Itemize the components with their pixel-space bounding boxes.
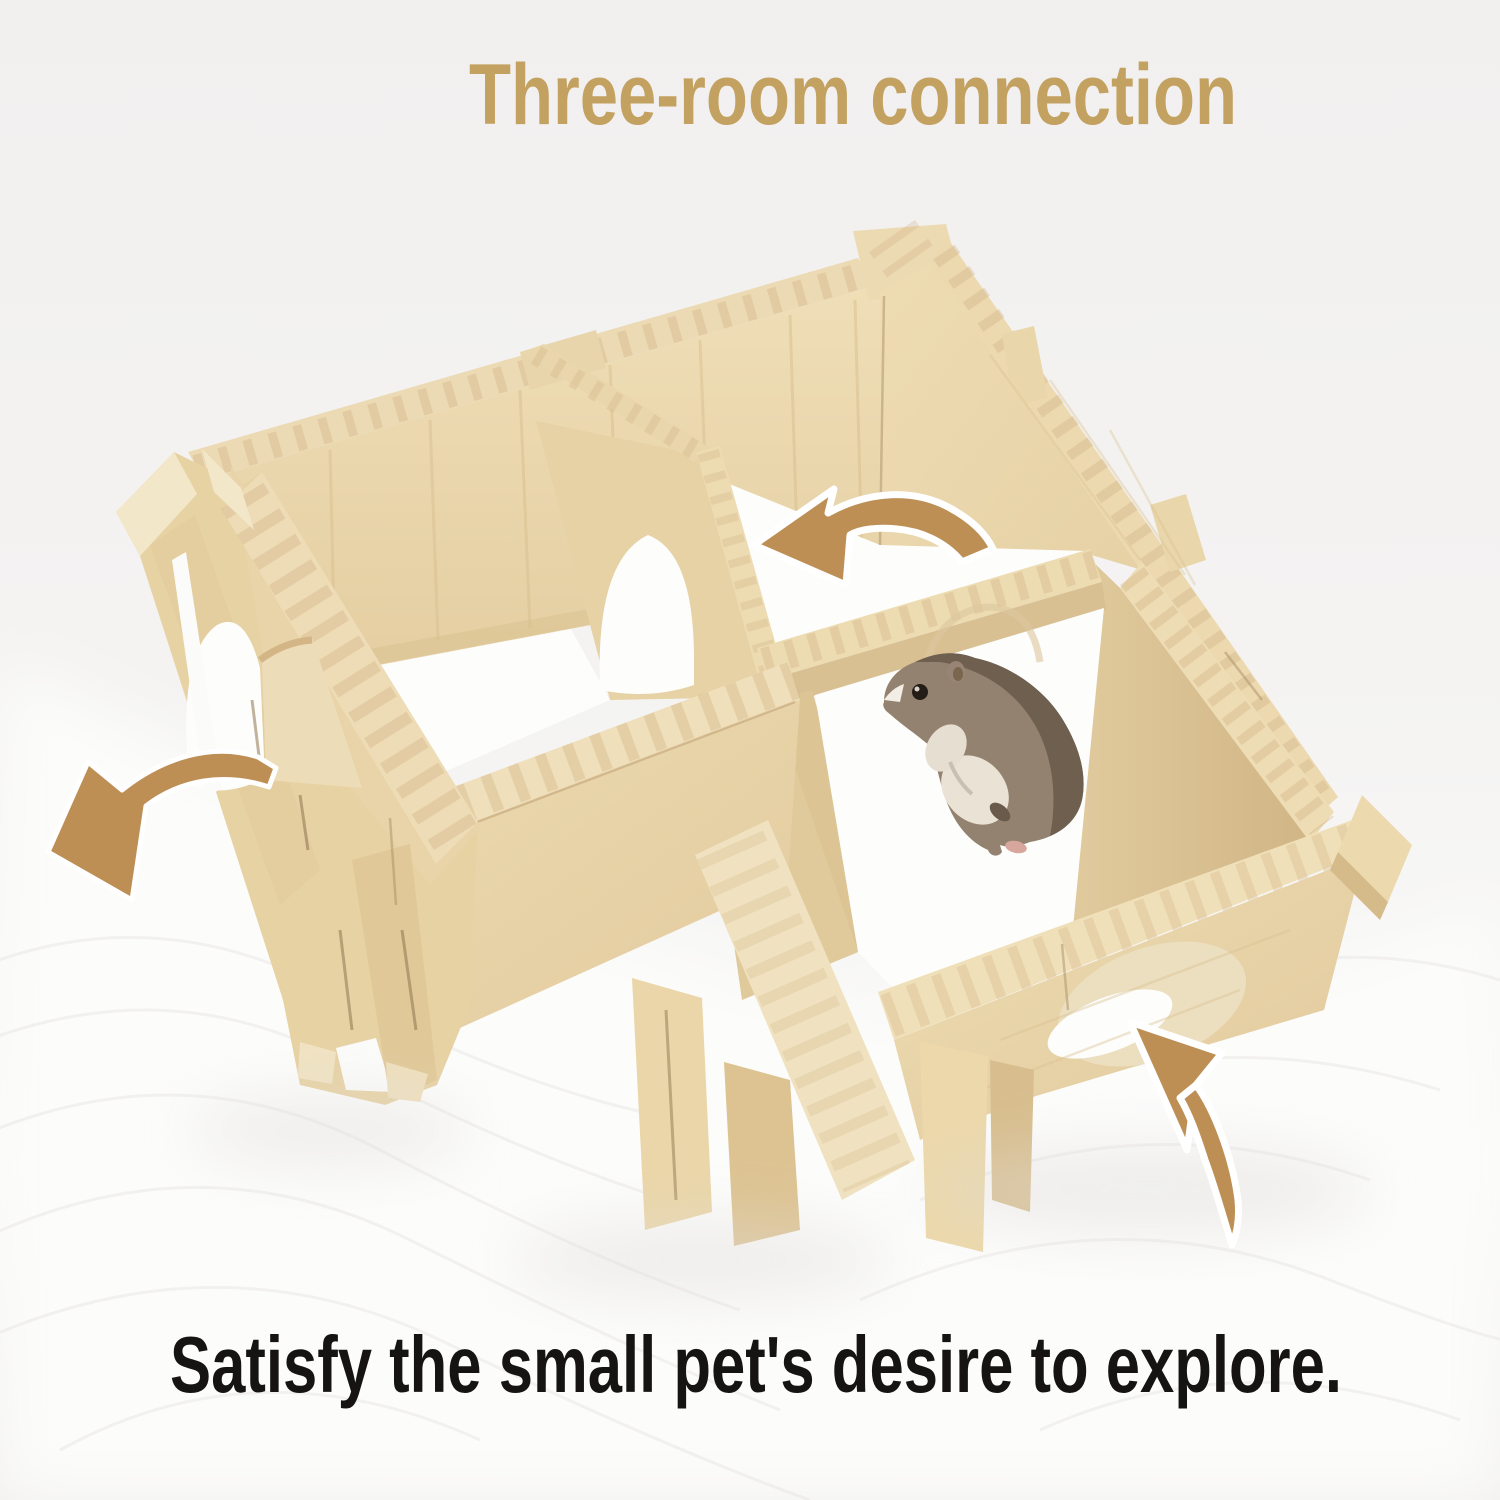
- svg-text:Three-room connection: Three-room connection: [469, 47, 1237, 143]
- svg-text:Satisfy the small pet's desire: Satisfy the small pet's desire to explor…: [170, 1320, 1342, 1409]
